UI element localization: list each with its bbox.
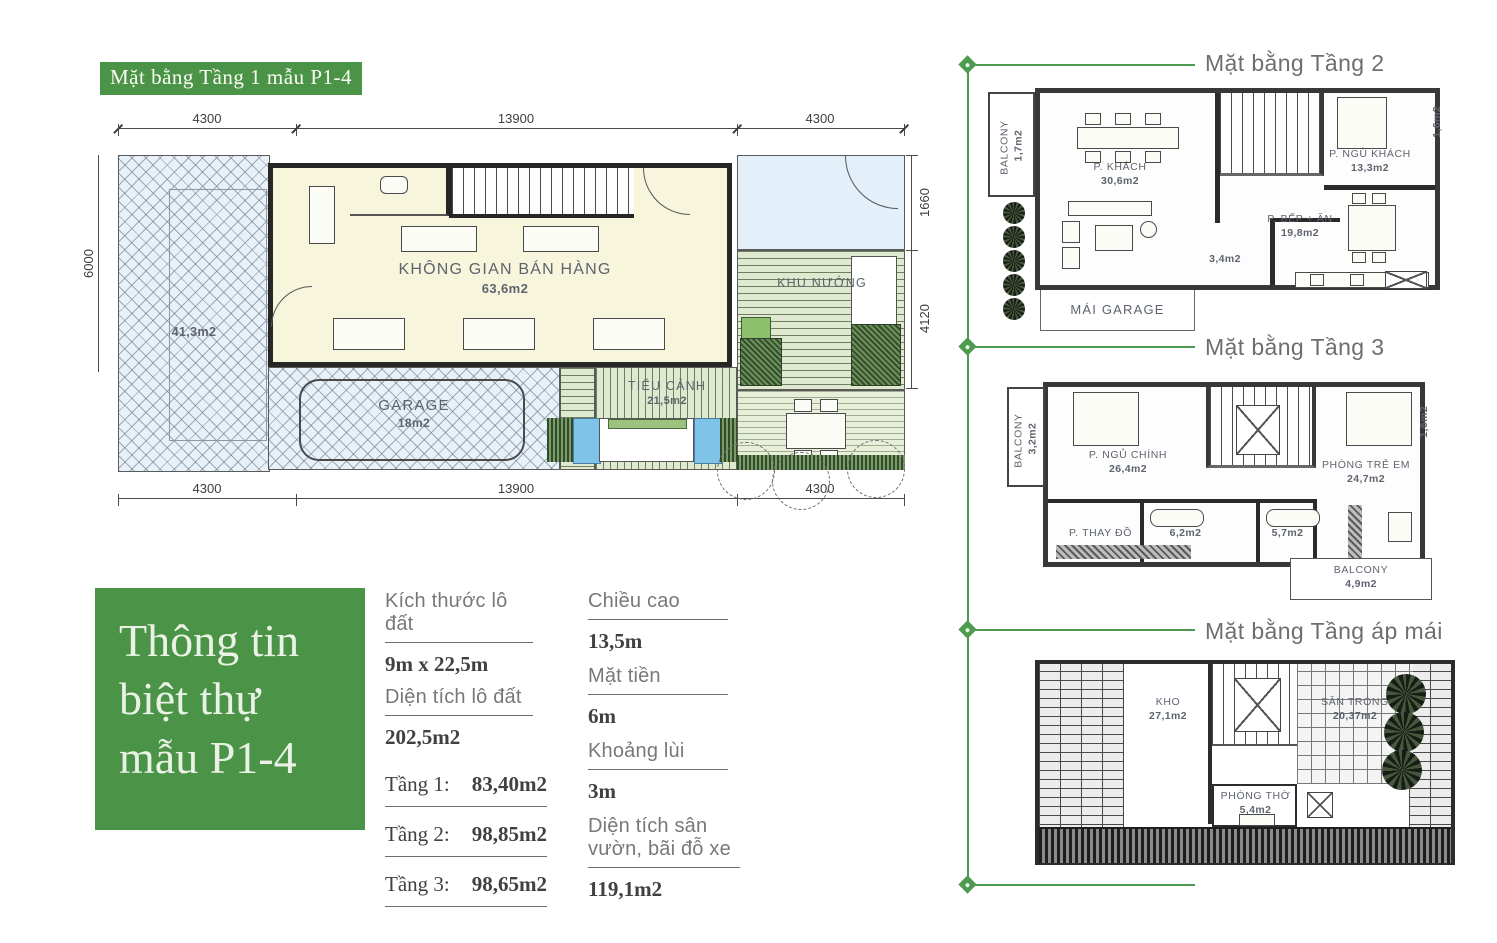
balcony2-label: BALCONY 4,9m2 — [1291, 564, 1431, 591]
display-table — [401, 226, 477, 252]
spec-row: Tầng 3: 98,65m2 — [385, 872, 547, 907]
spec-value: 119,1m2 — [588, 877, 758, 902]
shrub-symbol — [740, 338, 782, 386]
guest-bedroom-label: P. NGỦ KHÁCH 13,3m2 — [1300, 148, 1440, 175]
living-room-label: P. KHÁCH 30,6m2 — [1055, 161, 1185, 188]
sales-room: KHÔNG GIAN BÁN HÀNG 63,6m2 — [268, 163, 732, 367]
dim-label: 1660 — [917, 155, 933, 250]
bathtub-symbol — [1150, 509, 1204, 527]
dim-label: 4300 — [806, 111, 835, 126]
armchair-symbol — [1062, 247, 1080, 269]
table-symbol — [1077, 127, 1179, 149]
garage-region: GARAGE 18m2 — [268, 367, 560, 470]
floor2-outline: P. KHÁCH 30,6m2 P. NGỦ KHÁCH 13,3m2 1,6m… — [1035, 88, 1440, 290]
kids-room-label: PHÒNG TRẺ EM 24,7m2 — [1296, 459, 1436, 486]
specs-column-1: Kích thước lô đất 9m x 22,5m Diện tích l… — [385, 590, 547, 922]
spec-label: Chiều cao — [588, 590, 728, 620]
balcony-floor2: BALCONY 1,7m2 — [988, 92, 1035, 197]
bbq-region: KHU NƯỚNG — [737, 250, 905, 390]
main-floor-plan: 4300 13900 4300 4300 13900 4300 6000 166… — [95, 118, 940, 538]
bath2-label: 5,7m2 — [1260, 527, 1315, 541]
info-box: Thông tin biệt thự mẫu P1-4 — [95, 588, 365, 830]
spec-value: 9m x 22,5m — [385, 652, 547, 677]
attic-outline: KHO 27,1m2 SÂN TRONG 20,37m2 PHÒN — [1035, 660, 1455, 865]
spec-label: Khoảng lùi — [588, 740, 728, 770]
display-table — [333, 318, 405, 350]
shrub-symbol — [851, 324, 901, 386]
pool-basin — [573, 418, 601, 464]
chair-symbol — [1115, 113, 1131, 125]
plant-symbol — [1003, 298, 1025, 320]
kitchen-label: P. BẾP + ĂN 19,8m2 — [1240, 213, 1360, 240]
interior-wall — [1140, 499, 1317, 503]
spec-row: Tầng 2: 98,85m2 — [385, 822, 547, 857]
display-table — [463, 318, 535, 350]
lamp-symbol — [1140, 221, 1157, 238]
stove-symbol — [1350, 274, 1364, 286]
garden-label: TIỂU CẢNH 21,5m2 — [596, 378, 738, 409]
spec-label: Diện tích lô đất — [385, 686, 533, 716]
plant-symbol — [1003, 226, 1025, 248]
plant-symbol — [1003, 274, 1025, 296]
pool-planter — [608, 419, 687, 429]
spec-value: 6m — [588, 704, 758, 729]
storage-room: KHO 27,1m2 — [1124, 664, 1212, 824]
storage-label: KHO 27,1m2 — [1124, 696, 1212, 723]
tree-symbol — [1382, 750, 1422, 790]
coffee-table-symbol — [1095, 225, 1133, 251]
bed-symbol — [1337, 97, 1387, 149]
spec-row: Tầng 1: 83,40m2 — [385, 772, 547, 807]
worship-room: PHÒNG THỜ 5,4m2 — [1212, 784, 1297, 827]
chair-symbol — [1145, 113, 1161, 125]
yard-inner-border — [169, 189, 267, 441]
chair-symbol — [1372, 252, 1386, 263]
dim-tick — [118, 494, 119, 506]
sofa-symbol — [1068, 201, 1152, 216]
bathtub-symbol — [1266, 509, 1320, 527]
tree-symbol — [717, 442, 775, 500]
spec-value: 202,5m2 — [385, 725, 547, 750]
chair-symbol — [1352, 193, 1366, 204]
hedge-block — [547, 418, 573, 462]
diamond-node-icon — [958, 55, 976, 73]
dimension-line-right — [911, 155, 912, 388]
balcony2-floor3: BALCONY 4,9m2 — [1290, 558, 1432, 600]
tree-symbol — [1386, 674, 1426, 714]
dimension-line-top: 4300 13900 4300 — [118, 128, 905, 129]
balcony-label: BALCONY 3,2m2 — [1012, 401, 1039, 481]
page-title: Mặt bằng Tầng 1 mẫu P1-4 — [100, 62, 362, 95]
tree-symbol — [772, 452, 830, 510]
door-arc — [845, 156, 898, 209]
dressing-room-label: P. THAY ĐỒ — [1053, 527, 1148, 541]
entry-region — [737, 155, 905, 250]
small-room-label: 1,6m2 — [1431, 97, 1445, 147]
sales-room-label: KHÔNG GIAN BÁN HÀNG 63,6m2 — [355, 260, 655, 298]
elevator-shaft — [1236, 405, 1280, 455]
wc-room — [350, 168, 449, 216]
tree-symbol — [1384, 712, 1424, 752]
dim-label: 13900 — [498, 111, 534, 126]
connector-spine — [967, 65, 969, 885]
info-line-3: mẫu P1-4 — [119, 729, 365, 787]
outdoor-table — [786, 413, 846, 449]
pool-basin — [694, 418, 722, 464]
skylight-symbol — [1385, 271, 1427, 289]
altar-symbol — [1239, 814, 1275, 826]
wardrobe-symbol — [1056, 545, 1191, 559]
small-room-label: 1,6m2 — [1418, 397, 1432, 447]
interior-wall — [1324, 185, 1435, 190]
tree-symbol — [847, 440, 905, 498]
bed-symbol — [1073, 392, 1139, 446]
door-arc — [643, 168, 690, 215]
specs-column-2: Chiều cao 13,5m Mặt tiền 6m Khoảng lùi 3… — [588, 590, 758, 911]
info-line-1: Thông tin — [119, 612, 365, 670]
wardrobe-symbol — [1348, 505, 1362, 561]
diamond-node-icon — [958, 875, 976, 893]
balcony-label: BALCONY 1,7m2 — [998, 108, 1025, 188]
diamond-node-icon — [958, 620, 976, 638]
floor3-plan: Mặt bằng Tầng 3 P. NGỦ CHÍNH 26 — [985, 330, 1497, 605]
bbq-label: KHU NƯỚNG — [738, 275, 906, 291]
chair-symbol — [794, 399, 812, 412]
armchair-symbol — [1062, 221, 1080, 243]
dim-label: 4120 — [917, 250, 933, 388]
dim-tick — [296, 494, 297, 506]
display-table — [593, 318, 665, 350]
info-line-2: biệt thự — [119, 670, 365, 728]
toilet-symbol — [380, 176, 408, 194]
spec-label: Diện tích sân vườn, bãi đỗ xe — [588, 815, 740, 868]
dim-tick — [906, 388, 918, 389]
chair-symbol — [1085, 113, 1101, 125]
staircase — [449, 168, 634, 218]
plant-symbol — [1003, 250, 1025, 272]
garage-roof-label: MÁI GARAGE — [1041, 302, 1194, 319]
chair-symbol — [1372, 193, 1386, 204]
desk-symbol — [1388, 512, 1412, 542]
elevator-shaft — [1234, 678, 1281, 732]
floorplan-sheet: Mặt bằng Tầng 1 mẫu P1-4 4300 13900 4300… — [0, 0, 1497, 943]
spec-label: Kích thước lô đất — [385, 590, 533, 643]
dim-label: 13900 — [498, 481, 534, 496]
chair-symbol — [820, 399, 838, 412]
dimension-line-left — [98, 155, 99, 372]
dim-label: 4300 — [193, 111, 222, 126]
yard-area-label: 41,3m2 — [119, 324, 269, 340]
bed-symbol — [1346, 392, 1412, 446]
display-shelf — [309, 186, 335, 244]
spec-label: Mặt tiền — [588, 665, 728, 695]
display-table — [523, 226, 599, 252]
attic-plan: Mặt bằng Tầng áp mái KHO 27,1m2 SÂN TRON… — [985, 615, 1497, 895]
garage-label: GARAGE 18m2 — [339, 396, 489, 431]
spec-value: 3m — [588, 779, 758, 804]
floor3-outline: P. NGỦ CHÍNH 26,4m2 PHÒNG TRẺ EM 24,7m2 … — [1043, 382, 1425, 567]
wc-label: 3,4m2 — [1195, 253, 1255, 267]
spec-value: 13,5m — [588, 629, 758, 654]
pool-deck — [599, 418, 694, 462]
water-feature — [573, 418, 720, 462]
door-arc — [271, 286, 312, 327]
attic-title: Mặt bằng Tầng áp mái — [1205, 618, 1443, 645]
chair-symbol — [1352, 252, 1366, 263]
bath1-label: 6,2m2 — [1158, 527, 1213, 541]
plant-symbol — [1003, 202, 1025, 224]
balcony-floor3: BALCONY 3,2m2 — [1007, 387, 1045, 487]
dim-label: 4300 — [193, 481, 222, 496]
sink-symbol — [1310, 274, 1324, 286]
terrace-band — [1039, 827, 1451, 863]
master-bedroom-label: P. NGỦ CHÍNH 26,4m2 — [1063, 449, 1193, 476]
dim-tick — [904, 494, 905, 506]
floor2-title: Mặt bằng Tầng 2 — [1205, 50, 1384, 77]
washer-symbol — [1307, 792, 1333, 818]
yard-region: 41,3m2 — [118, 155, 270, 472]
dim-label: 6000 — [81, 155, 97, 372]
floor2-plan: Mặt bằng Tầng 2 — [985, 40, 1497, 335]
diamond-node-icon — [958, 337, 976, 355]
interior-wall — [1215, 93, 1220, 223]
floor3-title: Mặt bằng Tầng 3 — [1205, 334, 1384, 361]
garage-roof: MÁI GARAGE — [1040, 290, 1195, 331]
